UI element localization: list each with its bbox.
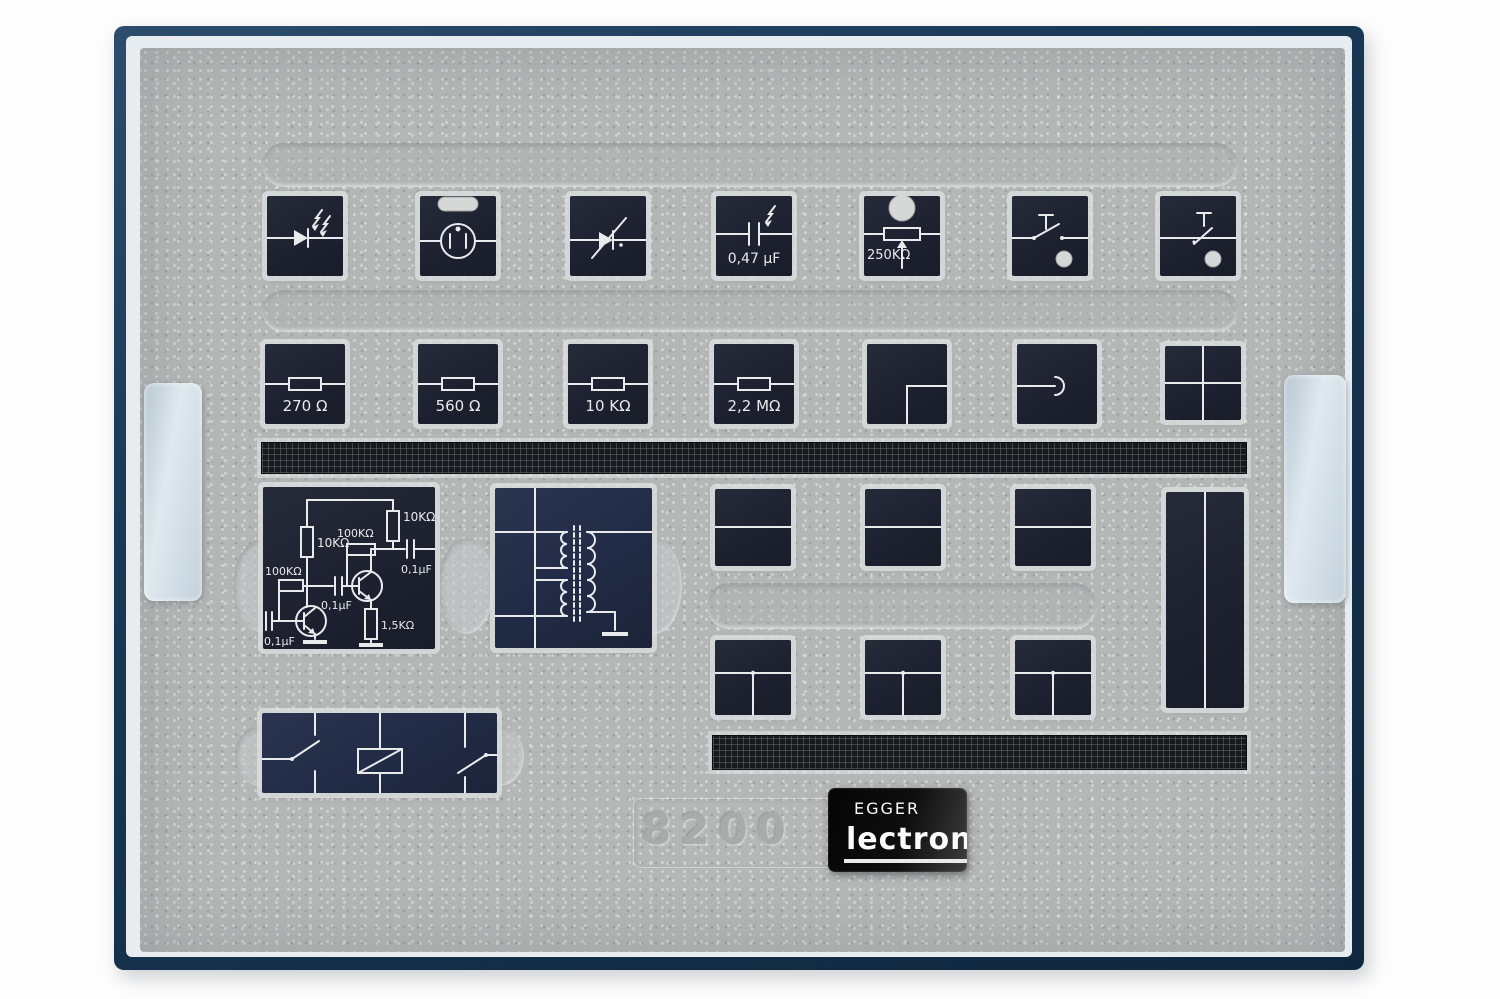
block-label: 250KΩ — [867, 248, 910, 263]
block-label: 2,2 MΩ — [727, 397, 780, 415]
amp-label-r-emitter: 1,5KΩ — [381, 619, 414, 632]
potentiometer-icon: 250KΩ — [864, 196, 940, 276]
badge-maker-text: EGGER — [854, 799, 920, 818]
tall-wire-icon — [1166, 492, 1244, 708]
pushbutton-break-block — [1160, 196, 1236, 276]
storage-channel-middle — [707, 583, 1097, 629]
wire-icon — [865, 489, 941, 566]
wire-block — [715, 489, 791, 566]
amp-label-r-collector-right: 10KΩ — [403, 510, 435, 524]
contact-hook-block — [1017, 344, 1097, 424]
relay-schematic-icon — [262, 713, 497, 793]
pushbutton-break-icon — [1160, 196, 1236, 276]
resistor-block-270: 270 Ω — [265, 344, 345, 424]
corner-wire-icon — [867, 344, 947, 424]
transformer-block — [495, 488, 652, 648]
cross-wire-block — [1165, 346, 1241, 420]
t-junction-block — [715, 640, 791, 715]
lamp-icon — [420, 196, 496, 276]
t-junction-icon — [715, 640, 791, 715]
wire-block — [865, 489, 941, 566]
kit-photo: 0,47 µF 250KΩ — [0, 0, 1500, 999]
brand-badge: EGGER lectron — [828, 788, 967, 872]
amp-label-c-coupling: 0,1µF — [321, 599, 352, 612]
transformer-schematic-icon — [495, 488, 652, 648]
embossed-code: 8200 — [642, 805, 795, 854]
storage-channel-upper — [262, 290, 1238, 332]
photo-diode-block — [570, 196, 646, 276]
t-junction-icon — [1015, 640, 1091, 715]
block-label: 0,47 µF — [728, 251, 781, 267]
foam-insert: 0,47 µF 250KΩ — [140, 48, 1345, 952]
resistor-icon: 2,2 MΩ — [714, 344, 794, 424]
kit-box-frame: 0,47 µF 250KΩ — [114, 26, 1364, 970]
t-junction-icon — [865, 640, 941, 715]
relay-block — [262, 713, 497, 793]
t-junction-block — [1015, 640, 1091, 715]
wire-icon — [1015, 489, 1091, 566]
wire-block — [1015, 489, 1091, 566]
led-diode-icon — [267, 196, 343, 276]
potentiometer-block: 250KΩ — [864, 196, 940, 276]
amplifier-circuit-block: 10KΩ 100KΩ 0,1µF 0,1µF 100KΩ 10KΩ 0,1µF … — [263, 487, 435, 649]
badge-brand-text: lectron — [844, 822, 967, 863]
block-label: 560 Ω — [436, 397, 481, 415]
corner-wire-block — [867, 344, 947, 424]
lamp-block — [420, 196, 496, 276]
pushbutton-block — [1012, 196, 1088, 276]
amp-label-r-feedback-mid: 100KΩ — [337, 527, 374, 540]
resistor-icon: 10 KΩ — [568, 344, 648, 424]
block-label: 270 Ω — [283, 397, 328, 415]
resistor-block-560: 560 Ω — [418, 344, 498, 424]
block-label: 10 KΩ — [585, 397, 630, 415]
amp-label-r-feedback-left: 100KΩ — [265, 565, 302, 578]
amplifier-schematic-icon: 10KΩ 100KΩ 0,1µF 0,1µF 100KΩ 10KΩ 0,1µF … — [263, 487, 435, 649]
grid-strip-lower — [712, 735, 1247, 770]
led-diode-block — [267, 196, 343, 276]
resistor-icon: 560 Ω — [418, 344, 498, 424]
resistor-block-10k: 10 KΩ — [568, 344, 648, 424]
capacitor-block: 0,47 µF — [716, 196, 792, 276]
wire-icon — [715, 489, 791, 566]
resistor-block-2m2: 2,2 MΩ — [714, 344, 794, 424]
grid-strip-upper — [261, 442, 1247, 474]
photo-diode-icon — [570, 196, 646, 276]
t-junction-block — [865, 640, 941, 715]
finger-notch — [438, 538, 494, 634]
cross-wire-icon — [1165, 346, 1241, 420]
right-handle — [1284, 375, 1346, 603]
left-handle — [144, 383, 202, 601]
capacitor-icon: 0,47 µF — [716, 196, 792, 276]
resistor-icon: 270 Ω — [265, 344, 345, 424]
amp-label-c-input: 0,1µF — [264, 635, 295, 648]
tall-wire-block — [1166, 492, 1244, 708]
pushbutton-icon — [1012, 196, 1088, 276]
contact-hook-icon — [1017, 344, 1097, 424]
amp-label-c-output: 0,1µF — [401, 563, 432, 576]
storage-channel-top — [262, 143, 1238, 187]
